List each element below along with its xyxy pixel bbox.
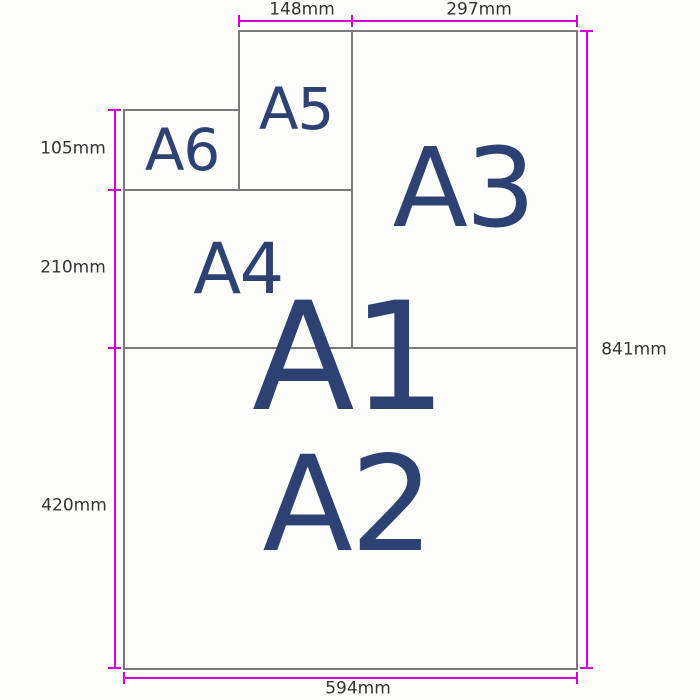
dimension-label-148mm: 148mm xyxy=(269,2,335,19)
dimension-label-420mm: 420mm xyxy=(41,498,107,515)
dimension-label-594mm: 594mm xyxy=(325,681,391,698)
a5-left-edge xyxy=(238,30,240,191)
sheet-edge-left xyxy=(123,109,125,670)
dimension-tick-left-4 xyxy=(108,667,121,669)
dimension-tick-top-right xyxy=(576,15,578,27)
sheet-edge-bottom xyxy=(123,668,578,670)
a4-top-edge xyxy=(123,189,353,191)
dimension-line-right xyxy=(586,31,588,669)
dimension-tick-bottom-left xyxy=(123,672,125,684)
dimension-line-left xyxy=(114,110,116,669)
size-label-a1: A1 xyxy=(252,283,444,433)
dimension-label-105mm: 105mm xyxy=(40,141,106,158)
dimension-label-841mm: 841mm xyxy=(601,342,667,359)
size-label-a5: A5 xyxy=(259,80,333,138)
dimension-tick-left-1 xyxy=(108,109,121,111)
sheet-edge-right xyxy=(576,30,578,670)
dimension-tick-left-2 xyxy=(108,189,121,191)
paper-size-diagram: 148mm 297mm 105mm 210mm 420mm 841mm 594m… xyxy=(0,0,700,700)
dimension-line-top xyxy=(238,20,578,22)
a6-top-edge xyxy=(123,109,240,111)
dimension-label-297mm: 297mm xyxy=(446,2,512,19)
dimension-tick-right-bottom xyxy=(580,667,593,669)
sheet-edge-top xyxy=(238,30,578,32)
dimension-tick-bottom-right xyxy=(576,672,578,684)
size-label-a2: A2 xyxy=(262,439,431,571)
dimension-tick-top-left xyxy=(238,15,240,27)
dimension-tick-top-mid xyxy=(351,15,353,27)
size-label-a3: A3 xyxy=(393,133,534,243)
size-label-a6: A6 xyxy=(145,121,219,179)
dimension-label-210mm: 210mm xyxy=(40,260,106,277)
dimension-tick-right-top xyxy=(580,30,593,32)
dimension-tick-left-3 xyxy=(108,347,121,349)
